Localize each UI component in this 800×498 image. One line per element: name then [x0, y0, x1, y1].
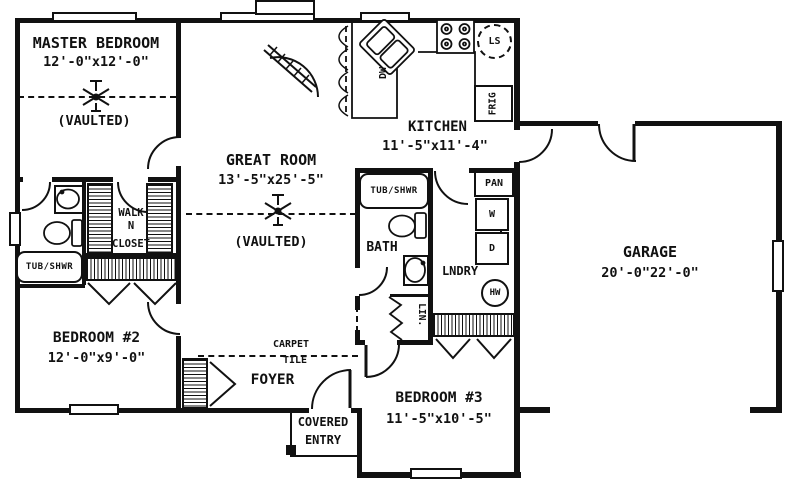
- wall-garage-top-right: [635, 121, 782, 126]
- window-bedroom2: [69, 404, 119, 415]
- dims-kitchen: 11'-5"x11'-4": [355, 140, 515, 154]
- ceiling-fan-icon: [265, 195, 291, 225]
- linen-label: LIN.: [416, 294, 426, 336]
- linen-accordion-door: [389, 297, 402, 340]
- burner: [442, 39, 452, 49]
- room-label-laundry: LNDRY: [433, 265, 487, 277]
- lazy-susan: LS: [477, 24, 512, 59]
- fireplace-face: [264, 50, 312, 92]
- bedroom2-closet-bifold-left: [88, 283, 130, 304]
- door-arc-master-bedroom: [148, 137, 180, 169]
- toilet-tank: [72, 220, 82, 246]
- master-toilet: [44, 220, 82, 246]
- window-master-bedroom: [52, 12, 137, 22]
- hall-opening-dashed: [356, 306, 358, 332]
- room-label-bath: BATH: [356, 241, 408, 254]
- sink-bowl-left: [366, 26, 396, 56]
- counter-edge-left: [352, 22, 397, 118]
- wic-label-1: WALK: [103, 208, 159, 219]
- door-arc-bath: [359, 267, 387, 295]
- window-bedroom3: [410, 468, 462, 479]
- room-label-garage: GARAGE: [569, 245, 731, 260]
- wall-masterbath-bottom: [15, 284, 85, 288]
- room-label-great-room: GREAT ROOM: [190, 153, 352, 168]
- wic-label-2: N: [103, 221, 159, 232]
- wall-garage-top-left: [520, 121, 598, 126]
- burner: [442, 24, 452, 34]
- burner-center: [463, 43, 466, 46]
- bedroom3-closet-shelf: [432, 313, 515, 337]
- wall-suite-top-a: [15, 177, 23, 182]
- bedroom3-closet-bifold-left: [436, 339, 470, 358]
- pantry-cabinet: PAN: [474, 171, 514, 197]
- dims-garage: 20'-0"22'-0": [569, 267, 731, 281]
- fireplace-hatch: [270, 47, 309, 83]
- fireplace: [264, 45, 318, 97]
- wic-label-3: CLOSET: [100, 239, 162, 250]
- burner-center: [463, 28, 466, 31]
- dryer: D: [475, 232, 509, 265]
- stove: [437, 20, 474, 53]
- dims-bedroom2: 12'-0"x9'-0": [14, 352, 179, 366]
- room-label-bedroom2: BEDROOM #2: [14, 331, 179, 346]
- toilet-tank: [415, 213, 426, 238]
- dims-great-room: 13'-5"x25'-5": [190, 174, 352, 188]
- wall-garage-door-stub-right: [750, 407, 782, 413]
- fireplace-bay: [255, 0, 315, 15]
- dims-bedroom3: 11'-5"x10'-5": [358, 413, 520, 427]
- vault-line-great-room: [186, 213, 356, 215]
- room-label-bedroom3: BEDROOM #3: [358, 391, 520, 406]
- water-heater: HW: [481, 279, 509, 307]
- door-arc-garage-service: [599, 124, 636, 161]
- covered-entry-post: [286, 445, 296, 455]
- room-label-foyer: FOYER: [220, 373, 325, 388]
- note-master-vaulted: (VAULTED): [15, 115, 173, 129]
- floor-label-carpet: CARPET: [259, 340, 323, 350]
- kitchen-counter: [339, 22, 475, 118]
- door-arc-laundry: [435, 171, 468, 204]
- toilet-bowl: [389, 216, 415, 237]
- wall-right-upper: [514, 18, 520, 130]
- door-arc-bedroom3: [366, 344, 399, 377]
- floor-plan: TUB/SHWR TUB/SHWR PAN W D HW LS FRIG: [0, 0, 800, 498]
- floor-label-tile: TILE: [263, 356, 327, 366]
- toilet-bowl: [44, 222, 70, 244]
- hall-tub-shower: TUB/SHWR: [359, 173, 429, 209]
- vault-line-master: [18, 96, 176, 98]
- bath-vanity: [403, 255, 429, 286]
- fireplace-hearth-arc: [270, 57, 318, 97]
- fireplace-back: [268, 45, 316, 87]
- wall-greatroom-west-lower: [176, 336, 181, 413]
- burner: [460, 39, 470, 49]
- covered-entry-bottom-edge: [290, 455, 358, 457]
- bar-scallop-trim: [339, 26, 348, 116]
- room-label-kitchen: KITCHEN: [375, 120, 500, 134]
- master-vanity: [54, 185, 84, 214]
- room-label-master-bedroom: MASTER BEDROOM: [15, 36, 177, 51]
- note-great-room-vaulted: (VAULTED): [190, 236, 352, 250]
- counter-edge-top: [418, 52, 475, 85]
- bedroom3-closet-bifold-right: [477, 339, 511, 358]
- foyer-coat-closet-shelf: [182, 358, 208, 409]
- burner-center: [445, 28, 448, 31]
- burner: [460, 24, 470, 34]
- door-arc-master-bath: [22, 182, 50, 210]
- wall-greatroom-west-upper: [176, 177, 181, 304]
- fan-blades: [265, 195, 291, 225]
- wall-linen-top: [390, 294, 433, 297]
- refrigerator-label: FRIG: [489, 92, 499, 115]
- bedroom2-closet-bifold-right: [134, 283, 176, 304]
- window-garage: [772, 240, 784, 292]
- master-tub-shower: TUB/SHWR: [16, 251, 83, 283]
- burner-center: [445, 43, 448, 46]
- bedroom2-closet-shelf: [85, 257, 177, 281]
- stove-outline: [437, 20, 474, 53]
- refrigerator: FRIG: [474, 85, 513, 122]
- room-label-covered-entry-2: ENTRY: [286, 434, 360, 446]
- wall-bedroom3-top-a: [355, 340, 365, 345]
- window-master-bath: [9, 212, 21, 246]
- wall-garage-door-stub-left: [520, 407, 550, 413]
- room-label-covered-entry-1: COVERED: [286, 416, 360, 428]
- window-kitchen: [360, 12, 410, 22]
- hall-toilet: [389, 213, 426, 238]
- dishwasher-label: DW: [379, 55, 389, 91]
- washer: W: [475, 198, 509, 231]
- door-arc-kitchen-garage: [519, 129, 552, 162]
- dims-master-bedroom: 12'-0"x12'-0": [15, 56, 177, 70]
- wall-bedroom3-top-b: [397, 340, 433, 345]
- door-arc-bedroom2: [148, 302, 180, 334]
